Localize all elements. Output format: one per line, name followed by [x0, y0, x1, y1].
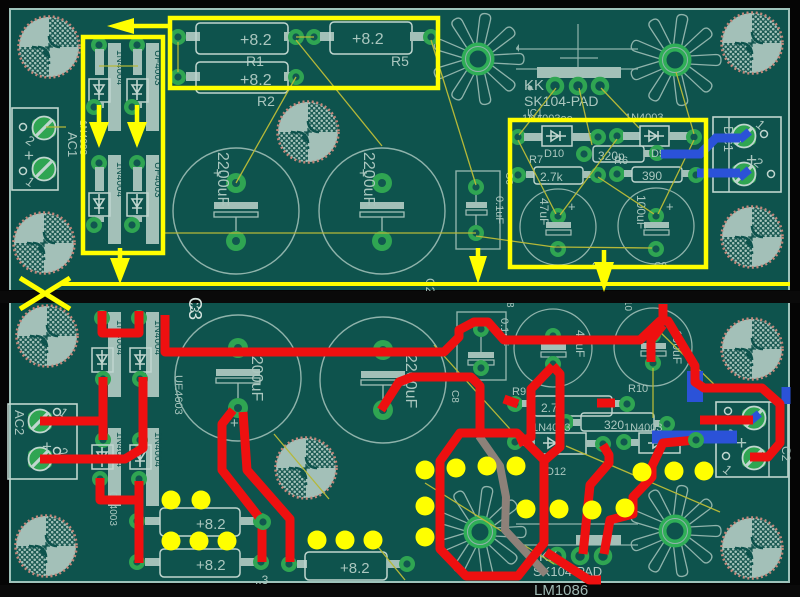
svg-text:+8.2: +8.2 [196, 557, 226, 574]
svg-text:+: + [568, 199, 576, 214]
svg-text:R1: R1 [246, 53, 264, 69]
svg-text:1N4004: 1N4004 [114, 320, 125, 355]
svg-text:1N4003: 1N4003 [532, 422, 571, 434]
svg-text:+8.2: +8.2 [352, 31, 384, 48]
svg-text:100uF: 100uF [634, 195, 648, 229]
svg-text:2200uF: 2200uF [360, 152, 377, 206]
svg-text:..3: ..3 [255, 573, 269, 587]
svg-text:47uF: 47uF [537, 198, 551, 225]
svg-text:1N4004: 1N4004 [114, 50, 125, 85]
svg-text:+8.2: +8.2 [240, 32, 272, 49]
svg-text:R10: R10 [628, 383, 648, 395]
svg-text:C3: C3 [185, 297, 205, 320]
svg-text:R9: R9 [512, 386, 526, 398]
svg-text:AC2: AC2 [12, 410, 27, 435]
svg-text:+: + [736, 433, 747, 454]
svg-text:R6: R6 [614, 155, 628, 167]
svg-text:2200uF: 2200uF [214, 152, 231, 206]
svg-text:1N4004: 1N4004 [114, 162, 125, 197]
svg-text:320: 320 [604, 418, 624, 432]
svg-text:C8: C8 [449, 390, 460, 403]
svg-text:2.7k: 2.7k [540, 170, 564, 184]
svg-text:390: 390 [642, 169, 662, 183]
svg-text:+: + [42, 437, 52, 456]
svg-text:KK: KK [524, 77, 544, 94]
svg-text:0.1uF: 0.1uF [493, 196, 505, 224]
svg-text:R5: R5 [391, 53, 409, 69]
svg-text:+: + [24, 146, 34, 165]
svg-text:1N4004: 1N4004 [152, 432, 163, 467]
svg-text:R2: R2 [257, 93, 275, 109]
svg-text:SK104-PAD: SK104-PAD [524, 93, 598, 109]
svg-text:D10: D10 [544, 148, 564, 160]
svg-text:+: + [666, 199, 674, 214]
svg-text:+8.2: +8.2 [340, 560, 370, 577]
svg-text:D12: D12 [546, 466, 566, 478]
svg-text:LM1086: LM1086 [534, 582, 588, 597]
svg-text:+8.2: +8.2 [196, 516, 226, 533]
